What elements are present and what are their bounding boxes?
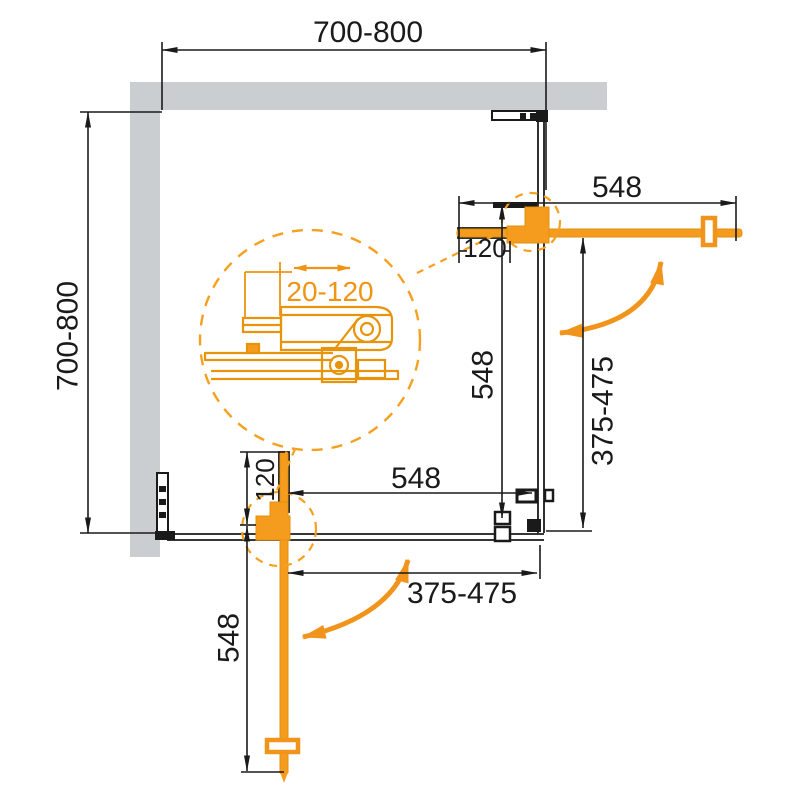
corner-bracket-lower <box>495 527 510 541</box>
dim-label-door-bottom: 548 <box>213 613 246 663</box>
dim-label-overall-depth: 700-800 <box>52 281 85 391</box>
dim-door-bottom: 548 <box>213 526 285 772</box>
door-glass-bar-bottom <box>280 452 288 774</box>
profile-hatch <box>159 486 166 492</box>
glass-clamp-right <box>517 490 536 502</box>
profile-hatch <box>159 499 166 505</box>
fixed-panel-right <box>458 110 548 533</box>
door-handle-right <box>703 218 715 245</box>
clamp-bolt-center <box>336 362 342 368</box>
corner-joint <box>527 519 541 532</box>
detail-dimension-20-120: 20-120 <box>245 262 374 318</box>
door-glass-tip-bottom <box>280 772 288 783</box>
detail-circle: 20-120 <box>200 230 503 490</box>
detail-dim-label: 20-120 <box>286 276 373 307</box>
technical-drawing-canvas: 20-120 700-800 700-800 548 120 548 3 <box>0 0 800 800</box>
glass-clamp-right-outer <box>545 490 553 501</box>
profile-hatch <box>159 512 166 518</box>
door-swing-arrow-bottom <box>303 560 408 637</box>
fixed-panel-bottom <box>155 452 544 540</box>
door-right-open <box>457 193 742 333</box>
bracket-hatch <box>520 113 526 119</box>
carriage-body <box>281 307 392 350</box>
door-handle-bottom <box>267 740 298 752</box>
dim-label-profile-adjust-bottom: 120 <box>250 458 280 501</box>
door-roller-block-right <box>507 207 549 243</box>
dim-door-span-bottom: 548 <box>288 462 532 495</box>
guide-block <box>358 360 385 378</box>
dim-label-door-top: 548 <box>592 171 642 204</box>
shower-enclosure-drawing: 20-120 700-800 700-800 548 120 548 3 <box>0 0 800 800</box>
dim-label-overall-width: 700-800 <box>313 16 423 49</box>
door-swing-arrow-right <box>560 262 661 333</box>
dim-label-door-span-right: 548 <box>467 350 500 400</box>
dim-fixed-panel-bottom: 375-475 <box>288 545 540 610</box>
detail-balloon-circle <box>200 230 420 450</box>
dim-label-profile-adjust-top: 120 <box>463 233 506 263</box>
door-roller-block-bottom <box>256 502 290 540</box>
roller-mechanism <box>205 307 398 382</box>
bracket-hatch <box>530 113 536 119</box>
rail-stop <box>247 344 259 353</box>
wall-top <box>130 82 607 110</box>
dim-label-fixed-panel-bottom: 375-475 <box>407 577 517 610</box>
rail-upper <box>205 353 332 360</box>
detail-dim-extension <box>245 262 292 318</box>
dim-label-fixed-panel-right: 375-475 <box>587 356 620 466</box>
dim-fixed-panel-right: 375-475 <box>546 238 620 531</box>
wall-left <box>130 82 160 557</box>
roller-wheel-inner <box>361 323 373 335</box>
roller-wheel-outer <box>354 316 380 342</box>
dim-label-door-span-bottom: 548 <box>391 462 441 495</box>
